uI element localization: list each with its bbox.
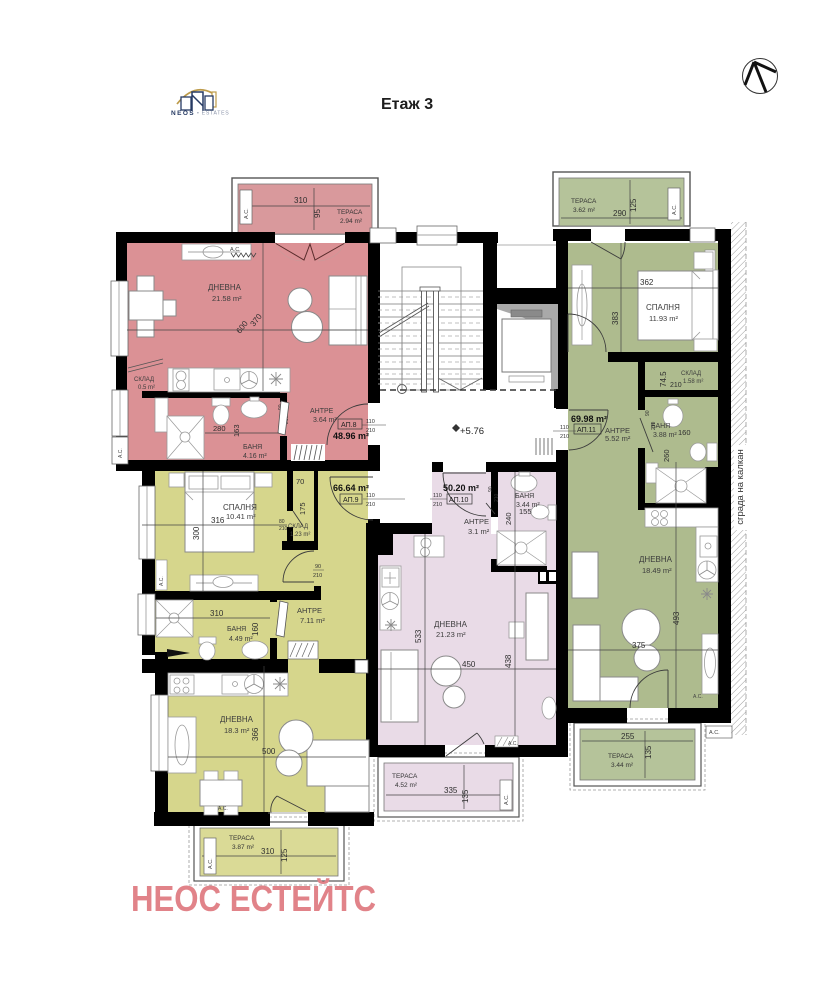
svg-text:90: 90	[315, 564, 321, 570]
svg-text:БАНЯ: БАНЯ	[243, 444, 262, 451]
svg-text:493: 493	[672, 611, 681, 625]
svg-text:110: 110	[433, 493, 442, 499]
svg-text:450: 450	[462, 660, 476, 669]
svg-text:3.62 m²: 3.62 m²	[573, 207, 596, 214]
svg-text:ДНЕВНА: ДНЕВНА	[434, 620, 468, 629]
svg-text:90: 90	[488, 486, 494, 492]
svg-text:300: 300	[192, 526, 201, 540]
svg-text:ДНЕВНА: ДНЕВНА	[220, 715, 254, 724]
svg-text:А.С.: А.С.	[159, 576, 165, 586]
svg-text:438: 438	[504, 654, 513, 668]
svg-text:NEOS: NEOS	[171, 110, 195, 117]
svg-text:175: 175	[298, 502, 307, 515]
svg-text:СПАЛНЯ: СПАЛНЯ	[646, 303, 680, 312]
svg-text:163: 163	[232, 424, 241, 437]
svg-text:ТЕРАСА: ТЕРАСА	[392, 773, 418, 780]
svg-text:210: 210	[313, 573, 322, 579]
svg-text:А.С.: А.С.	[230, 247, 241, 253]
svg-text:АП.8: АП.8	[341, 422, 357, 429]
svg-text:ТЕРАСА: ТЕРАСА	[229, 835, 255, 842]
svg-text:160: 160	[251, 622, 260, 636]
svg-text:АП.10: АП.10	[449, 497, 468, 504]
svg-text:18.3 m²: 18.3 m²	[224, 726, 250, 735]
svg-text:А.С.: А.С.	[709, 730, 720, 736]
svg-text:533: 533	[414, 629, 423, 643]
svg-text:НЕОС ЕСТЕЙТС: НЕОС ЕСТЕЙТС	[131, 877, 376, 919]
svg-text:21.58 m²: 21.58 m²	[212, 294, 242, 303]
svg-text:210: 210	[433, 502, 442, 508]
svg-text:3.64 m²: 3.64 m²	[313, 417, 337, 424]
svg-text:69.98 m²: 69.98 m²	[571, 414, 607, 424]
svg-text:110: 110	[366, 493, 375, 499]
svg-text:21.23 m²: 21.23 m²	[436, 630, 466, 639]
svg-text:310: 310	[261, 847, 275, 856]
svg-text:135: 135	[644, 745, 653, 759]
svg-text:260: 260	[662, 449, 671, 462]
svg-text:• ESTATES: • ESTATES	[197, 111, 229, 117]
svg-text:50.20 m²: 50.20 m²	[443, 483, 479, 493]
svg-text:155: 155	[519, 507, 532, 516]
svg-text:СКЛАД: СКЛАД	[288, 524, 308, 530]
svg-text:280: 280	[213, 424, 226, 433]
svg-text:БАНЯ: БАНЯ	[515, 493, 534, 500]
svg-text:335: 335	[444, 786, 458, 795]
svg-text:362: 362	[640, 278, 654, 287]
svg-text:66.64 m²: 66.64 m²	[333, 483, 369, 493]
svg-text:160: 160	[678, 428, 691, 437]
svg-text:290: 290	[613, 209, 627, 218]
svg-text:135: 135	[461, 789, 470, 803]
svg-text:310: 310	[294, 196, 308, 205]
svg-text:74.5: 74.5	[659, 371, 668, 387]
svg-text:3.44 m²: 3.44 m²	[611, 762, 634, 769]
svg-text:АНТРЕ: АНТРЕ	[464, 517, 489, 526]
svg-text:АНТРЕ: АНТРЕ	[297, 606, 322, 615]
svg-text:4.16 m²: 4.16 m²	[243, 453, 267, 460]
svg-text:125: 125	[280, 848, 289, 862]
svg-text:240: 240	[504, 512, 513, 525]
svg-text:90: 90	[645, 410, 651, 416]
svg-text:А.С.: А.С.	[672, 204, 678, 215]
svg-text:11.93 m²: 11.93 m²	[649, 314, 679, 323]
svg-text:10.41 m²: 10.41 m²	[226, 512, 256, 521]
svg-text:ТЕРАСА: ТЕРАСА	[608, 753, 634, 760]
svg-text:366: 366	[251, 727, 260, 741]
svg-text:А.С.: А.С.	[244, 208, 250, 219]
svg-text:310: 310	[210, 609, 224, 618]
svg-text:4.52 m²: 4.52 m²	[395, 782, 418, 789]
svg-text:500: 500	[262, 747, 276, 756]
svg-text:210: 210	[651, 421, 657, 430]
svg-text:ТЕРАСА: ТЕРАСА	[571, 198, 597, 205]
svg-text:110: 110	[366, 419, 375, 425]
svg-text:210: 210	[560, 434, 569, 440]
svg-text:2.94 m²: 2.94 m²	[340, 218, 363, 225]
svg-text:+5.76: +5.76	[460, 426, 484, 437]
svg-text:АП.11: АП.11	[577, 427, 596, 434]
svg-text:1.23 m²: 1.23 m²	[290, 532, 310, 538]
svg-text:СПАЛНЯ: СПАЛНЯ	[223, 503, 257, 512]
svg-text:сграда на калкан: сграда на калкан	[735, 449, 746, 525]
svg-text:7.11 m²: 7.11 m²	[300, 616, 325, 625]
svg-text:4.49 m²: 4.49 m²	[229, 636, 253, 643]
svg-text:АНТРЕ: АНТРЕ	[310, 408, 334, 415]
svg-text:3.87 m²: 3.87 m²	[232, 844, 255, 851]
svg-text:210: 210	[494, 493, 500, 502]
svg-text:95: 95	[313, 209, 322, 218]
svg-text:210: 210	[366, 428, 375, 434]
svg-text:А.С.: А.С.	[504, 794, 510, 805]
svg-text:255: 255	[621, 732, 635, 741]
svg-text:375: 375	[632, 641, 646, 650]
svg-text:383: 383	[611, 311, 620, 325]
svg-text:А.С.: А.С.	[118, 448, 124, 458]
svg-text:БАНЯ: БАНЯ	[227, 626, 246, 633]
svg-text:18.49 m²: 18.49 m²	[642, 566, 672, 575]
svg-text:А.С.: А.С.	[218, 806, 228, 812]
svg-text:А.С.: А.С.	[693, 694, 703, 700]
svg-text:1.58 m²: 1.58 m²	[683, 379, 703, 385]
svg-text:3.1 m²: 3.1 m²	[468, 527, 490, 536]
svg-text:3.88 m²: 3.88 m²	[653, 432, 677, 439]
svg-text:АП.9: АП.9	[343, 497, 359, 504]
svg-text:СКЛАД: СКЛАД	[134, 377, 154, 383]
svg-text:А.С.: А.С.	[508, 741, 518, 747]
svg-text:210: 210	[366, 502, 375, 508]
svg-text:0.5 m²: 0.5 m²	[138, 385, 155, 391]
svg-text:110: 110	[560, 425, 569, 431]
svg-text:210: 210	[670, 382, 682, 389]
svg-text:125: 125	[629, 198, 638, 212]
svg-text:ТЕРАСА: ТЕРАСА	[337, 209, 363, 216]
svg-text:316: 316	[211, 516, 225, 525]
svg-text:210: 210	[279, 526, 288, 532]
svg-text:48.96 m²: 48.96 m²	[333, 431, 369, 441]
svg-text:80: 80	[279, 519, 285, 525]
svg-text:5.52 m²: 5.52 m²	[605, 434, 631, 443]
svg-text:Етаж 3: Етаж 3	[381, 96, 433, 113]
svg-text:СКЛАД: СКЛАД	[681, 371, 701, 377]
svg-text:ДНЕВНА: ДНЕВНА	[208, 283, 242, 292]
svg-text:ДНЕВНА: ДНЕВНА	[639, 555, 673, 564]
svg-text:70: 70	[296, 477, 304, 486]
svg-text:А.С.: А.С.	[208, 858, 214, 869]
